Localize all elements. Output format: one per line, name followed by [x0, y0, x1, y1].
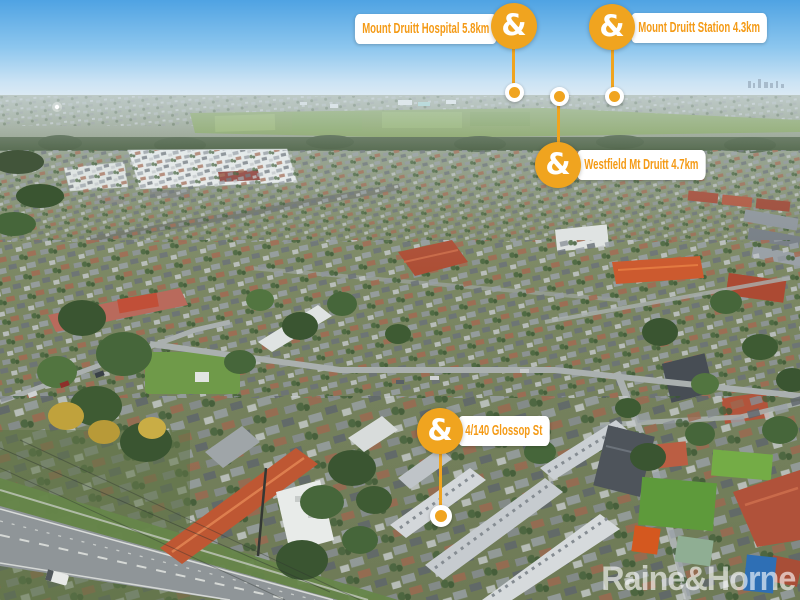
aerial-photo [0, 0, 800, 600]
pin-label-property: 4/140 Glossop St [458, 416, 550, 446]
brand-badge-icon: & [491, 3, 537, 49]
pin-anchor-dot [550, 87, 569, 106]
listing-photo: Mount Druitt Hospital 5.8km & Mount Drui… [0, 0, 800, 600]
pin-anchor-dot [605, 87, 624, 106]
pin-anchor-dot [430, 505, 452, 527]
brand-watermark: Raine&Horne [601, 560, 795, 599]
pin-stem [512, 47, 515, 87]
pin-label-westfield: Westfield Mt Druitt 4.7km [577, 150, 706, 180]
ampersand-icon: & [427, 413, 452, 447]
brand-badge-icon: & [417, 408, 463, 454]
pin-anchor-dot [505, 83, 524, 102]
brand-badge-icon: & [589, 4, 635, 50]
ampersand-icon: & [599, 9, 624, 43]
pin-stem [439, 452, 442, 507]
brand-badge-icon: & [535, 142, 581, 188]
ampersand-icon: & [545, 147, 570, 181]
pin-stem [557, 104, 560, 144]
ampersand-icon: & [501, 8, 526, 42]
pin-label-hospital: Mount Druitt Hospital 5.8km [355, 14, 497, 44]
pin-stem [611, 48, 614, 89]
pin-label-station: Mount Druitt Station 4.3km [631, 13, 767, 43]
